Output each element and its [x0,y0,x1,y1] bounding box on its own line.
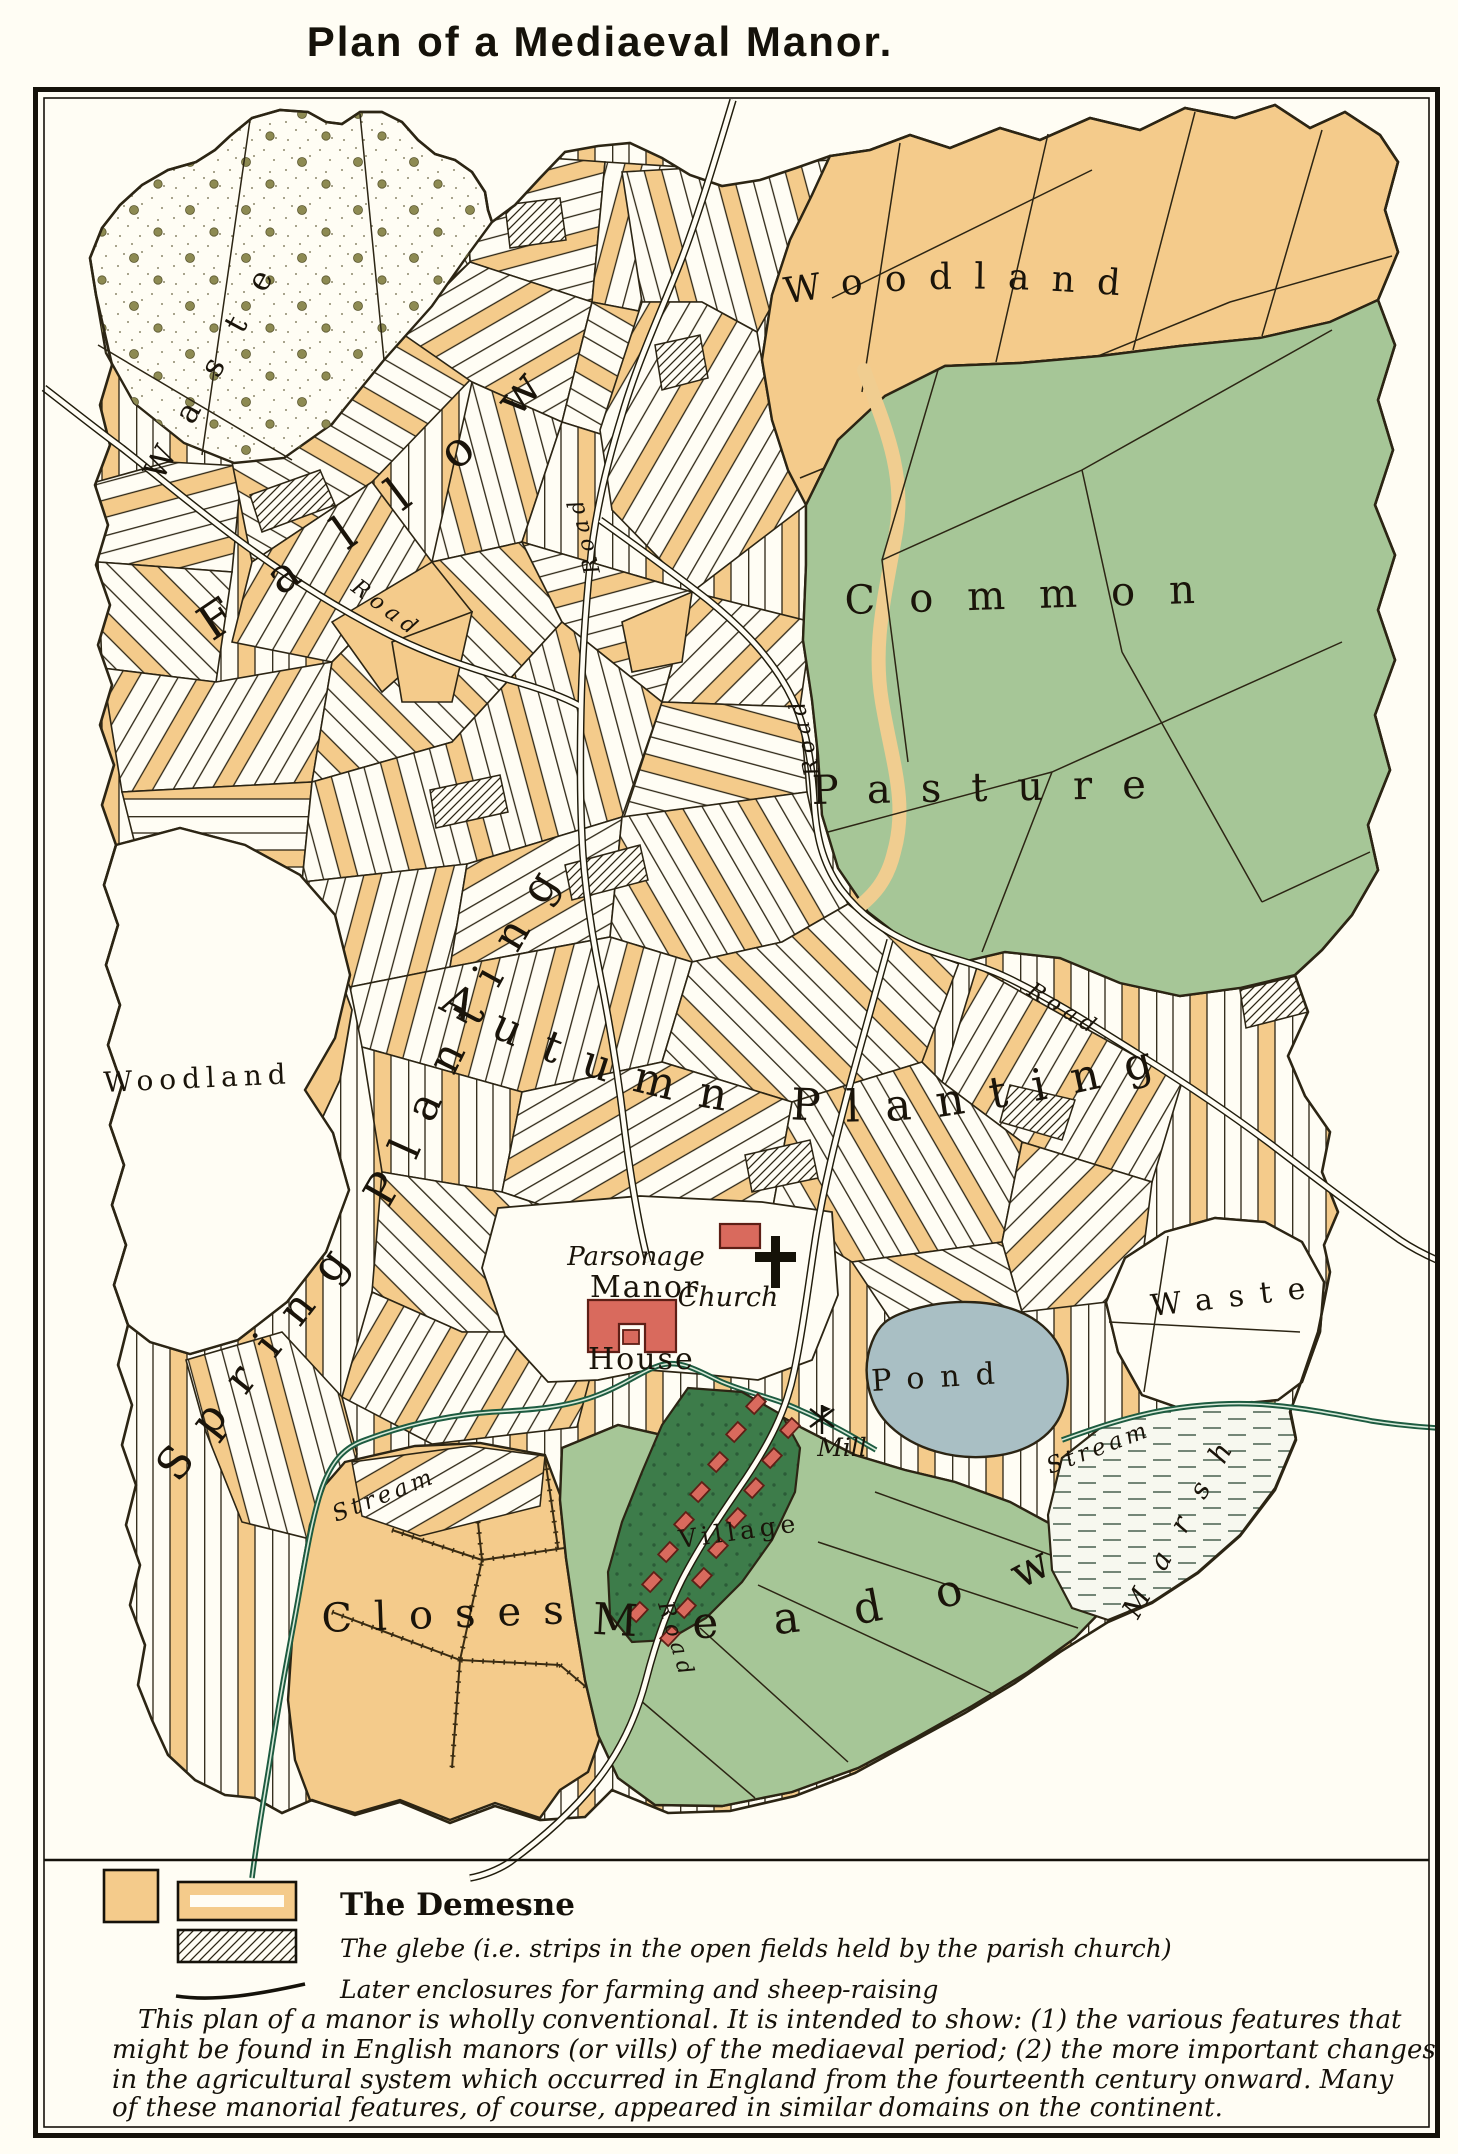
label-manor: Manor [590,1270,700,1305]
legend-demesne-label: The Demesne [340,1887,575,1923]
map-canvas: Plan of a Mediaeval Manor. [0,0,1458,2154]
caption-line-1: This plan of a manor is wholly conventio… [138,2005,1402,2035]
label-parsonage: Parsonage [566,1242,705,1272]
caption-line-4: of these manorial features, of course, a… [112,2093,1223,2123]
caption-line-2: might be found in English manors (or vil… [112,2035,1436,2065]
legend-enclosures-label: Later enclosures for farming and sheep-r… [339,1975,938,2004]
region-common-pasture [803,300,1395,996]
parsonage-building [720,1224,760,1248]
label-closes: Closes [321,1587,587,1642]
label-house: House [588,1342,695,1377]
legend-demesne-strip-swatch [178,1882,296,1920]
page-title: Plan of a Mediaeval Manor. [307,18,894,65]
legend-demesne-solid-swatch [104,1870,158,1922]
caption-line-3: in the agricultural system which occurre… [112,2065,1393,2095]
manor-map-plate: Plan of a Mediaeval Manor. [0,0,1458,2154]
legend-glebe-swatch [178,1930,296,1962]
label-pasture: Pasture [811,761,1176,814]
field-furlong [102,662,332,792]
label-mill: Mill [816,1433,867,1462]
legend-glebe-label: The glebe (i.e. strips in the open field… [340,1934,1172,1963]
